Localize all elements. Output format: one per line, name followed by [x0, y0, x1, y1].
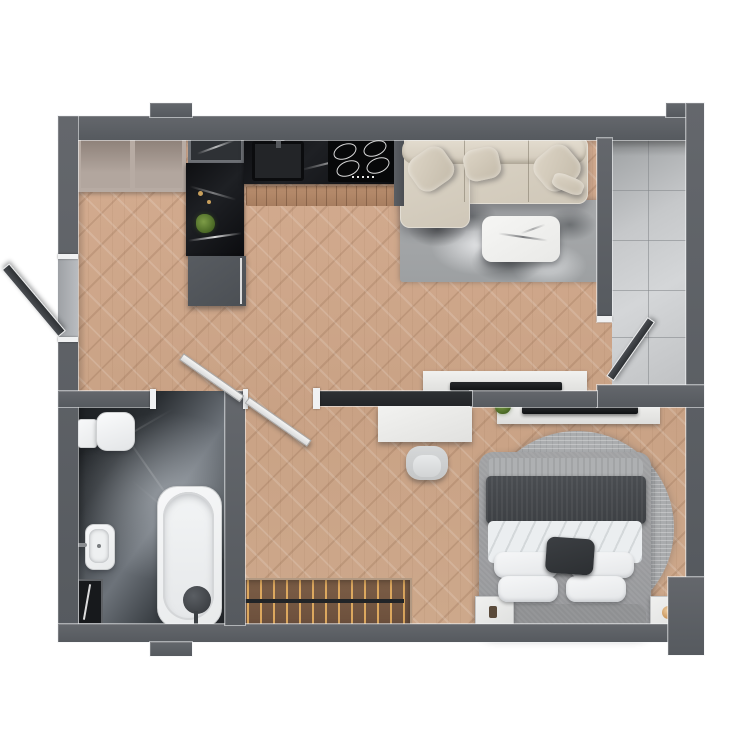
gold-decor	[198, 191, 203, 196]
wall-bottom-bump	[150, 642, 192, 656]
balcony-tile-line	[648, 138, 649, 385]
sofa-seam	[528, 138, 529, 202]
balcony-tile-line	[612, 240, 687, 241]
wall-top	[58, 116, 704, 140]
bath-floor-mixer	[183, 586, 211, 614]
kitchen-faucet-base	[276, 140, 281, 148]
bed-dark-blanket	[486, 476, 646, 524]
chair-seat	[413, 455, 441, 477]
basin-drain	[97, 544, 101, 548]
nightstand-decor	[489, 606, 497, 618]
window-jamb	[58, 337, 78, 342]
wall-bathroom-right	[225, 391, 245, 625]
balcony-tile-line	[612, 290, 687, 291]
bed-pillow	[566, 576, 626, 602]
kitchen-base-cabinet	[188, 256, 246, 306]
wardrobe-bay-left	[81, 137, 130, 188]
basin-faucet	[77, 543, 87, 547]
balcony-tile-line	[612, 190, 687, 191]
floor-plan	[0, 0, 740, 740]
wall-desk	[378, 406, 472, 442]
living-tv	[450, 382, 562, 391]
window-sash-open	[2, 263, 66, 337]
balcony-tile-line	[612, 337, 687, 338]
kitchen-runner-mat	[246, 186, 396, 206]
balcony-floor	[612, 138, 687, 385]
wall-under-balcony	[597, 385, 704, 407]
wall-bedroom-top	[470, 391, 597, 407]
bathroom-door-jamb	[150, 389, 156, 409]
doormat-rail	[236, 599, 404, 603]
window-jamb	[58, 254, 78, 259]
gold-decor	[207, 200, 211, 204]
cabinet-edge-highlight	[240, 258, 242, 304]
wall-corner-bottom-right	[668, 577, 704, 655]
bed-pillow	[498, 576, 558, 602]
wall-balcony-left	[597, 138, 612, 322]
toilet-flush-plate	[78, 419, 97, 448]
bedroom-tv	[522, 406, 638, 414]
coffee-table	[482, 216, 560, 262]
desk-chair	[406, 446, 448, 480]
wall-right	[686, 103, 704, 577]
partition-end-cap	[313, 388, 320, 409]
kitchen-marble-column	[186, 163, 244, 256]
bed-foot-throw	[487, 458, 643, 478]
wall-bathroom-top	[58, 391, 155, 407]
toilet-bowl	[96, 412, 135, 451]
wall-bottom	[58, 624, 676, 642]
cooktop-controls	[352, 176, 374, 178]
wall-top-bump	[150, 103, 192, 117]
wall-left	[58, 116, 78, 640]
balcony-door-jamb	[597, 316, 612, 322]
wardrobe-bay-right	[135, 137, 182, 188]
bed-accent-cushion	[545, 536, 595, 575]
kitchen-plant	[196, 214, 215, 233]
partition-rail-dark	[318, 391, 472, 406]
entry-doormat	[232, 578, 412, 630]
